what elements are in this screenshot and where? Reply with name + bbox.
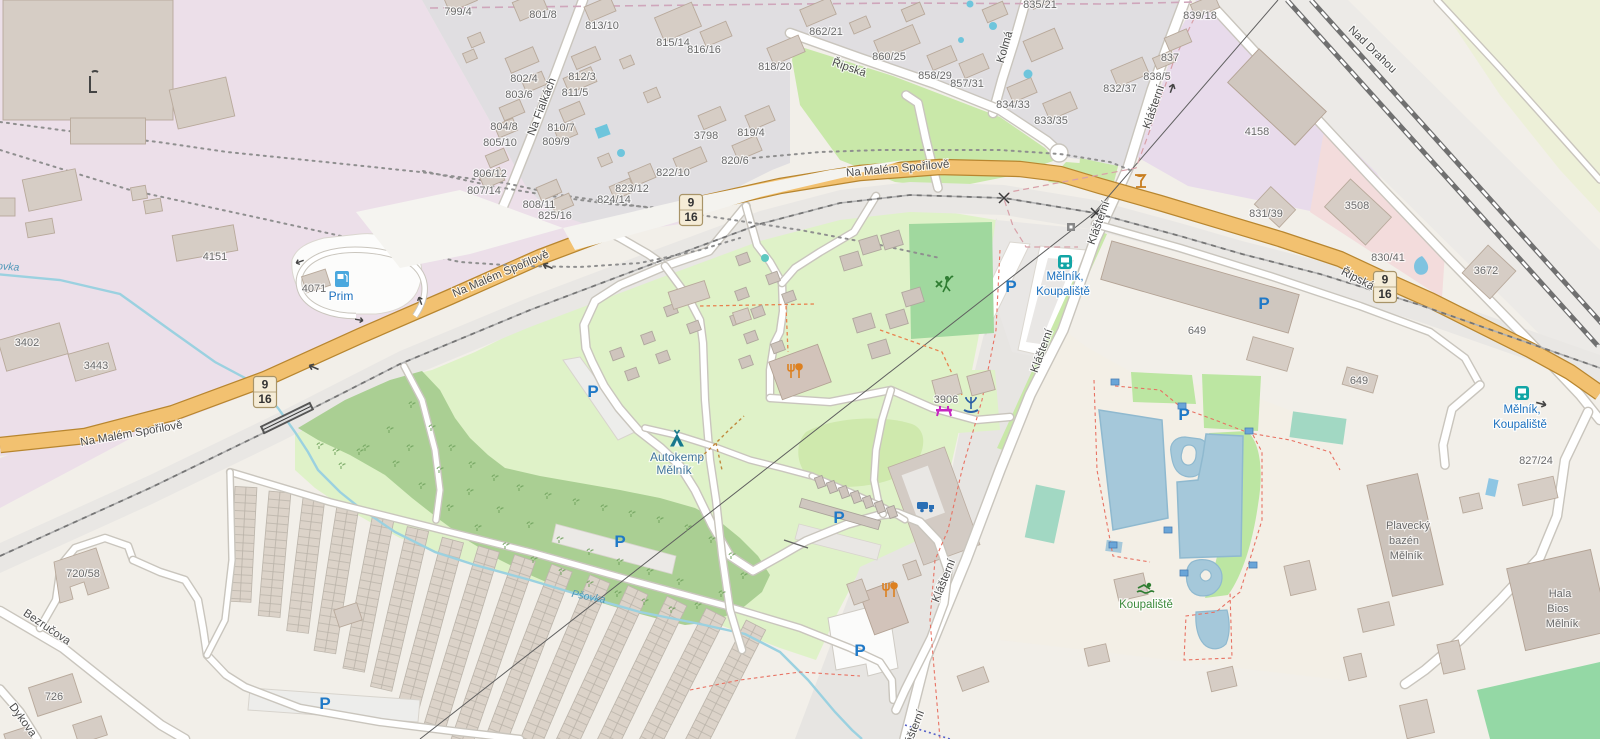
svg-text:813/10: 813/10 <box>585 20 619 32</box>
svg-text:804/8: 804/8 <box>490 121 518 133</box>
svg-text:833/35: 833/35 <box>1034 115 1068 127</box>
svg-text:3402: 3402 <box>15 337 39 349</box>
svg-text:857/31: 857/31 <box>950 78 984 90</box>
svg-text:649: 649 <box>1188 325 1206 337</box>
svg-text:809/9: 809/9 <box>542 136 570 148</box>
svg-text:819/4: 819/4 <box>737 127 765 139</box>
svg-text:Mělník: Mělník <box>1390 550 1423 562</box>
svg-text:801/8: 801/8 <box>529 9 557 21</box>
svg-text:862/21: 862/21 <box>809 26 843 38</box>
svg-text:818/20: 818/20 <box>758 61 792 73</box>
svg-text:4071: 4071 <box>302 283 326 295</box>
svg-text:Autokemp: Autokemp <box>650 450 704 464</box>
svg-text:Mělník,: Mělník, <box>1503 404 1540 416</box>
svg-text:P: P <box>854 641 865 660</box>
svg-text:3508: 3508 <box>1345 200 1369 212</box>
svg-text:824/14: 824/14 <box>597 194 631 206</box>
svg-text:9: 9 <box>688 196 695 210</box>
svg-text:bazén: bazén <box>1389 535 1419 547</box>
svg-text:807/14: 807/14 <box>467 185 501 197</box>
svg-text:803/6: 803/6 <box>505 89 533 101</box>
svg-text:P: P <box>614 532 625 551</box>
svg-text:831/39: 831/39 <box>1249 208 1283 220</box>
svg-text:Mělník: Mělník <box>656 463 692 477</box>
svg-text:Bios: Bios <box>1547 603 1569 615</box>
svg-text:Mělník,: Mělník, <box>1046 271 1083 283</box>
svg-text:726: 726 <box>45 691 63 703</box>
svg-text:858/29: 858/29 <box>918 70 952 82</box>
svg-text:16: 16 <box>684 210 698 224</box>
svg-text:805/10: 805/10 <box>483 137 517 149</box>
svg-text:799/4: 799/4 <box>444 6 472 18</box>
svg-text:P: P <box>1258 294 1269 313</box>
svg-text:839/18: 839/18 <box>1183 10 1217 22</box>
svg-text:649: 649 <box>1350 375 1368 387</box>
svg-text:4158: 4158 <box>1245 126 1269 138</box>
svg-text:3443: 3443 <box>84 360 108 372</box>
svg-text:830/41: 830/41 <box>1371 252 1405 264</box>
svg-text:838/5: 838/5 <box>1143 71 1171 83</box>
svg-text:811/5: 811/5 <box>562 87 589 99</box>
svg-text:834/33: 834/33 <box>996 99 1030 111</box>
svg-text:812/3: 812/3 <box>568 71 596 83</box>
svg-text:4151: 4151 <box>203 251 227 263</box>
svg-text:Koupaliště: Koupaliště <box>1119 599 1173 611</box>
svg-text:P: P <box>1005 277 1016 296</box>
svg-text:832/37: 832/37 <box>1103 83 1137 95</box>
svg-text:3906: 3906 <box>934 394 958 406</box>
svg-text:835/21: 835/21 <box>1023 0 1057 11</box>
svg-text:9: 9 <box>1382 273 1389 287</box>
svg-text:9: 9 <box>262 378 269 392</box>
svg-text:Koupaliště: Koupaliště <box>1036 286 1090 298</box>
svg-text:822/10: 822/10 <box>656 167 690 179</box>
svg-text:720/58: 720/58 <box>66 568 100 580</box>
svg-text:16: 16 <box>1378 287 1392 301</box>
svg-text:P: P <box>587 382 598 401</box>
svg-text:16: 16 <box>258 392 272 406</box>
svg-text:802/4: 802/4 <box>510 73 538 85</box>
svg-text:837: 837 <box>1161 52 1179 64</box>
svg-text:P: P <box>319 694 330 713</box>
svg-text:816/16: 816/16 <box>687 44 721 56</box>
svg-text:Koupaliště: Koupaliště <box>1493 419 1547 431</box>
svg-text:Prim: Prim <box>329 289 354 303</box>
svg-text:820/6: 820/6 <box>721 155 749 167</box>
svg-text:806/12: 806/12 <box>473 168 507 180</box>
svg-text:P: P <box>833 508 844 527</box>
svg-text:3798: 3798 <box>694 130 718 142</box>
svg-text:860/25: 860/25 <box>872 51 906 63</box>
svg-text:Mělník: Mělník <box>1546 618 1579 630</box>
svg-text:P: P <box>1178 405 1189 424</box>
svg-text:810/7: 810/7 <box>547 122 575 134</box>
svg-text:Plavecký: Plavecký <box>1386 520 1431 532</box>
svg-text:3672: 3672 <box>1474 265 1498 277</box>
svg-text:815/14: 815/14 <box>656 37 690 49</box>
svg-text:ovka: ovka <box>0 260 20 274</box>
svg-text:825/16: 825/16 <box>538 210 572 222</box>
svg-text:827/24: 827/24 <box>1519 455 1553 467</box>
svg-text:Hala: Hala <box>1549 588 1573 600</box>
